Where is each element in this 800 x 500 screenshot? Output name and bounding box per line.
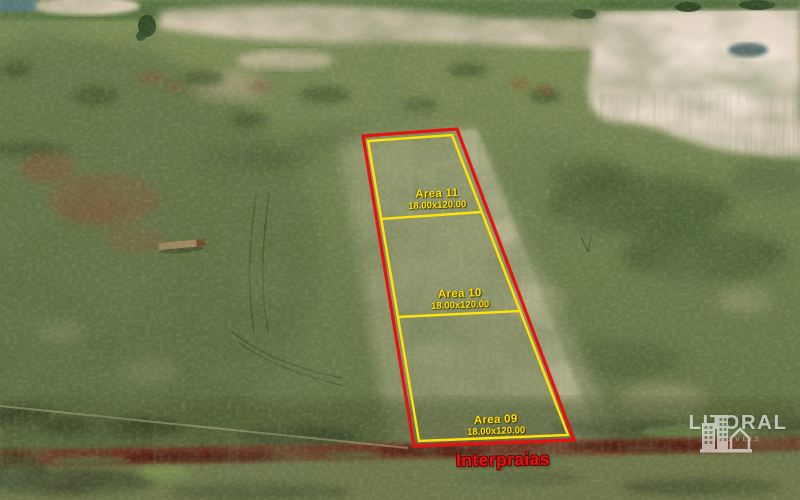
area-dimensions: 18.00x120.00 <box>431 300 489 313</box>
area-label-10: Area 10 18.00x120.00 <box>431 287 490 313</box>
plot-divider-area11-area10 <box>380 212 482 219</box>
area-dimensions: 18.00x120.00 <box>408 200 466 213</box>
area-dimensions: 18.00x120.00 <box>467 426 525 439</box>
aerial-photo: Area 11 18.00x120.00 Area 10 18.00x120.0… <box>0 0 800 500</box>
logo-subtext: IMÓVEIS <box>678 436 798 443</box>
brand-watermark: Interpraias <box>456 449 550 472</box>
realtor-logo: LITORAL IMÓVEIS <box>678 413 798 443</box>
area-label-11: Area 11 18.00x120.00 <box>408 187 467 213</box>
city-skyline-house-icon <box>700 413 752 453</box>
area-label-09: Area 09 18.00x120.00 <box>467 413 526 439</box>
